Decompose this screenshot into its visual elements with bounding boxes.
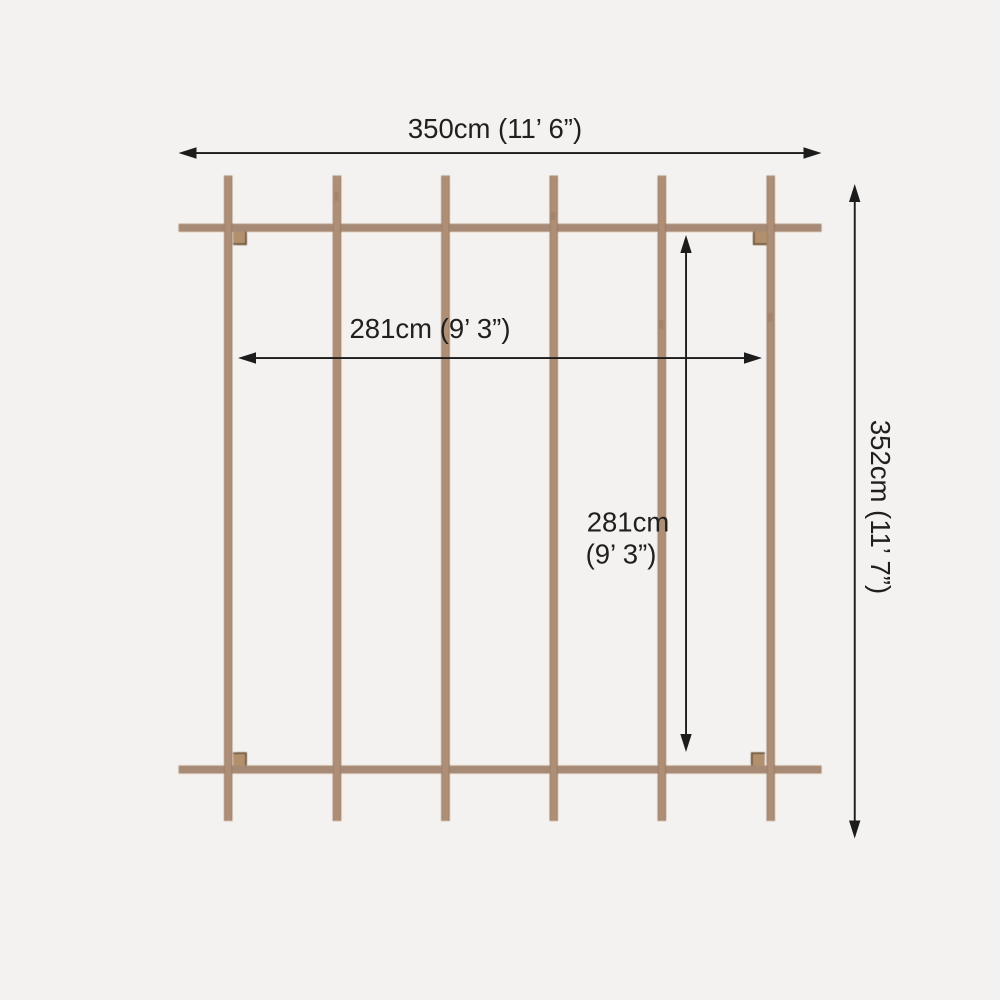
svg-text:281cm: 281cm bbox=[587, 507, 670, 538]
svg-text:281cm (9’ 3”): 281cm (9’ 3”) bbox=[350, 313, 511, 344]
svg-text:(9’ 3”): (9’ 3”) bbox=[586, 539, 657, 570]
svg-text:352cm (11’ 7”): 352cm (11’ 7”) bbox=[865, 420, 896, 594]
svg-text:350cm (11’ 6”): 350cm (11’ 6”) bbox=[408, 113, 582, 144]
